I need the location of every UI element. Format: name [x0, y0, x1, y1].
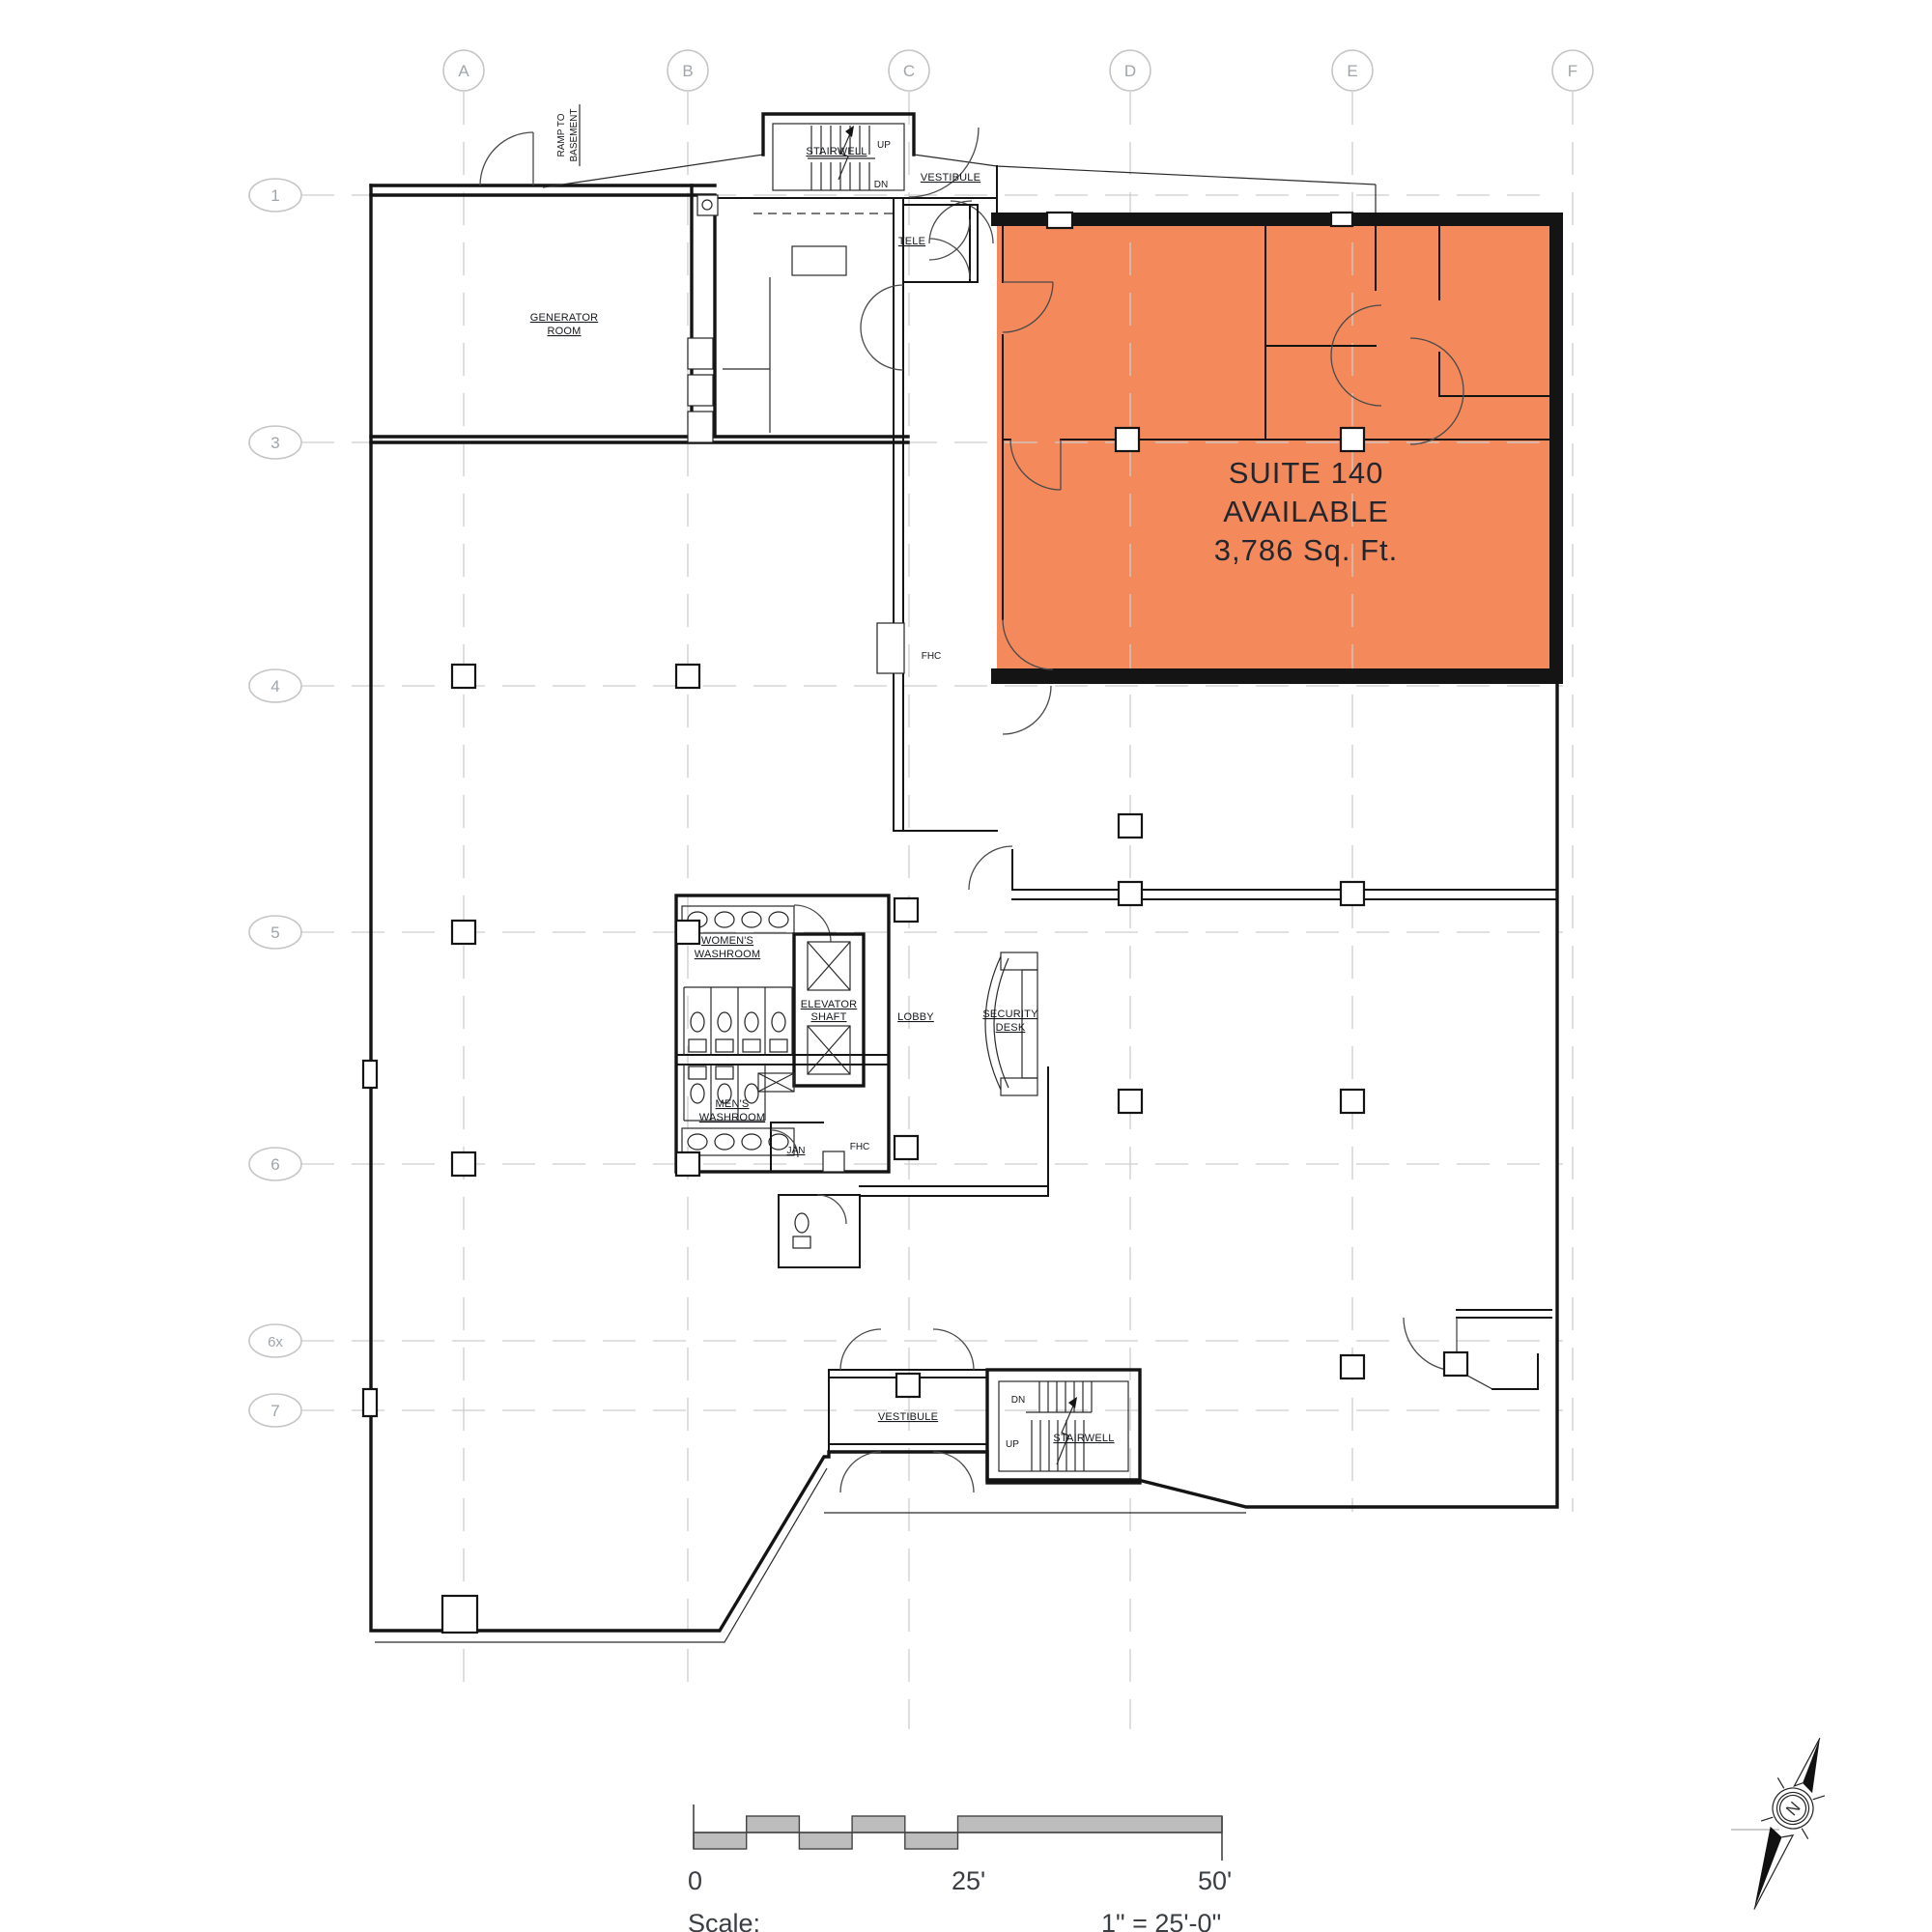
suite-140-highlight: [997, 220, 1557, 674]
scale-bar: 0 25' 50' Scale; 1" = 25'-0": [688, 1804, 1232, 1932]
elevator-shaft-label-1: ELEVATOR: [801, 999, 857, 1010]
security-desk-label-1: SECURITY: [982, 1009, 1038, 1020]
floor-plan-drawing: A B C D E F 1 3 4 5 6 6x 7: [0, 0, 1932, 1932]
north-letter: N: [1782, 1798, 1804, 1819]
grid-label-B: B: [682, 62, 693, 80]
grid-label-7: 7: [270, 1402, 279, 1420]
equipment-box: [688, 338, 713, 369]
wall-notch: [363, 1389, 377, 1416]
stairwell-top-label: STAIRWELL: [806, 146, 867, 157]
suite-area-label: 3,786 Sq. Ft.: [1214, 533, 1399, 567]
stairwell-top: STAIRWELL UP DN: [773, 124, 904, 190]
generator-room-label-2: ROOM: [547, 326, 581, 337]
scale-caption: Scale;: [688, 1909, 760, 1932]
grid-label-4: 4: [270, 677, 279, 696]
wall-column: [1331, 213, 1352, 226]
vestibule-bottom-label: VESTIBULE: [878, 1411, 938, 1423]
grid-column-bubbles: A B C D E F: [443, 50, 1593, 91]
wall-column: [442, 1596, 477, 1633]
grid-label-5: 5: [270, 923, 279, 942]
grid-label-6: 6: [270, 1155, 279, 1174]
fire-hose-cabinet: [823, 1151, 844, 1172]
grid-label-A: A: [458, 62, 469, 80]
suite-right-wall: [1549, 213, 1563, 684]
fire-hose-cabinet: [877, 623, 904, 673]
ramp-label-2: BASEMENT: [569, 108, 580, 161]
jan-label: JAN: [787, 1146, 806, 1156]
suite-top-wall: [991, 213, 1563, 226]
wall-column: [1047, 213, 1072, 228]
grid-row-bubbles: 1 3 4 5 6 6x 7: [249, 179, 301, 1427]
suite-bottom-wall: [991, 668, 1563, 684]
grid-label-6x: 6x: [268, 1334, 283, 1350]
security-desk-label-2: DESK: [996, 1022, 1026, 1034]
equipment-table: [792, 246, 846, 275]
equipment-box: [688, 412, 713, 442]
vestibule-top-label: VESTIBULE: [921, 172, 980, 184]
fhc-upper-label: FHC: [922, 651, 942, 662]
up-bottom-label: UP: [1006, 1439, 1019, 1450]
lobby-label: LOBBY: [897, 1011, 934, 1023]
mens-washroom-label-2: WASHROOM: [699, 1112, 765, 1123]
scale-ratio: 1" = 25'-0": [1101, 1909, 1221, 1932]
grid-label-3: 3: [270, 434, 279, 452]
grid-label-E: E: [1347, 62, 1357, 80]
alarm-panel: [697, 195, 718, 215]
north-arrow-icon: N: [1731, 1729, 1844, 1918]
washroom-core: WOMEN'S WASHROOM MEN'S WASHROOM ELEVATOR…: [676, 895, 1048, 1267]
suite-name-label: SUITE 140: [1229, 456, 1384, 490]
stairwell-bottom: DN UP STAIRWELL: [987, 1370, 1140, 1483]
scale-zero-label: 0: [688, 1866, 702, 1895]
womens-washroom-label-1: WOMEN'S: [701, 935, 753, 947]
grid-label-D: D: [1124, 62, 1136, 80]
service-room: [688, 195, 997, 831]
dn-top-label: DN: [874, 180, 888, 190]
fhc-lower-label: FHC: [850, 1142, 870, 1152]
womens-washroom-label-2: WASHROOM: [695, 949, 760, 960]
dn-bottom-label: DN: [1011, 1395, 1025, 1406]
suite-140-area-fill: [997, 220, 1557, 674]
suite-status-label: AVAILABLE: [1223, 495, 1389, 528]
up-top-label: UP: [877, 140, 891, 151]
grid-label-1: 1: [270, 186, 279, 205]
scale-25-label: 25': [952, 1866, 985, 1895]
equipment-box: [688, 375, 713, 406]
generator-room: GENERATOR ROOM: [371, 132, 908, 442]
tele-label: TELE: [898, 236, 925, 247]
ramp-label-1: RAMP TO: [556, 113, 567, 156]
vestibule-top: VESTIBULE: [909, 128, 997, 243]
generator-room-label-1: GENERATOR: [530, 312, 598, 324]
tele-room: TELE: [898, 205, 978, 282]
lower-right-room: [1404, 1310, 1551, 1389]
elevator-shaft-label-2: SHAFT: [810, 1011, 846, 1023]
grid-label-F: F: [1568, 62, 1577, 80]
stairwell-bottom-label: STAIRWELL: [1053, 1433, 1114, 1444]
mens-washroom-label-1: MEN'S: [716, 1098, 750, 1110]
wall-column: [1444, 1352, 1467, 1376]
floor-plan-page: A B C D E F 1 3 4 5 6 6x 7: [0, 0, 1932, 1932]
ramp-annotation: RAMP TO BASEMENT: [556, 104, 580, 166]
grid-label-C: C: [903, 62, 915, 80]
lobby: LOBBY SECURITY DESK: [897, 952, 1038, 1095]
wall-notch: [363, 1061, 377, 1088]
demising-wall: [969, 686, 1557, 899]
scale-50-label: 50': [1198, 1866, 1232, 1895]
